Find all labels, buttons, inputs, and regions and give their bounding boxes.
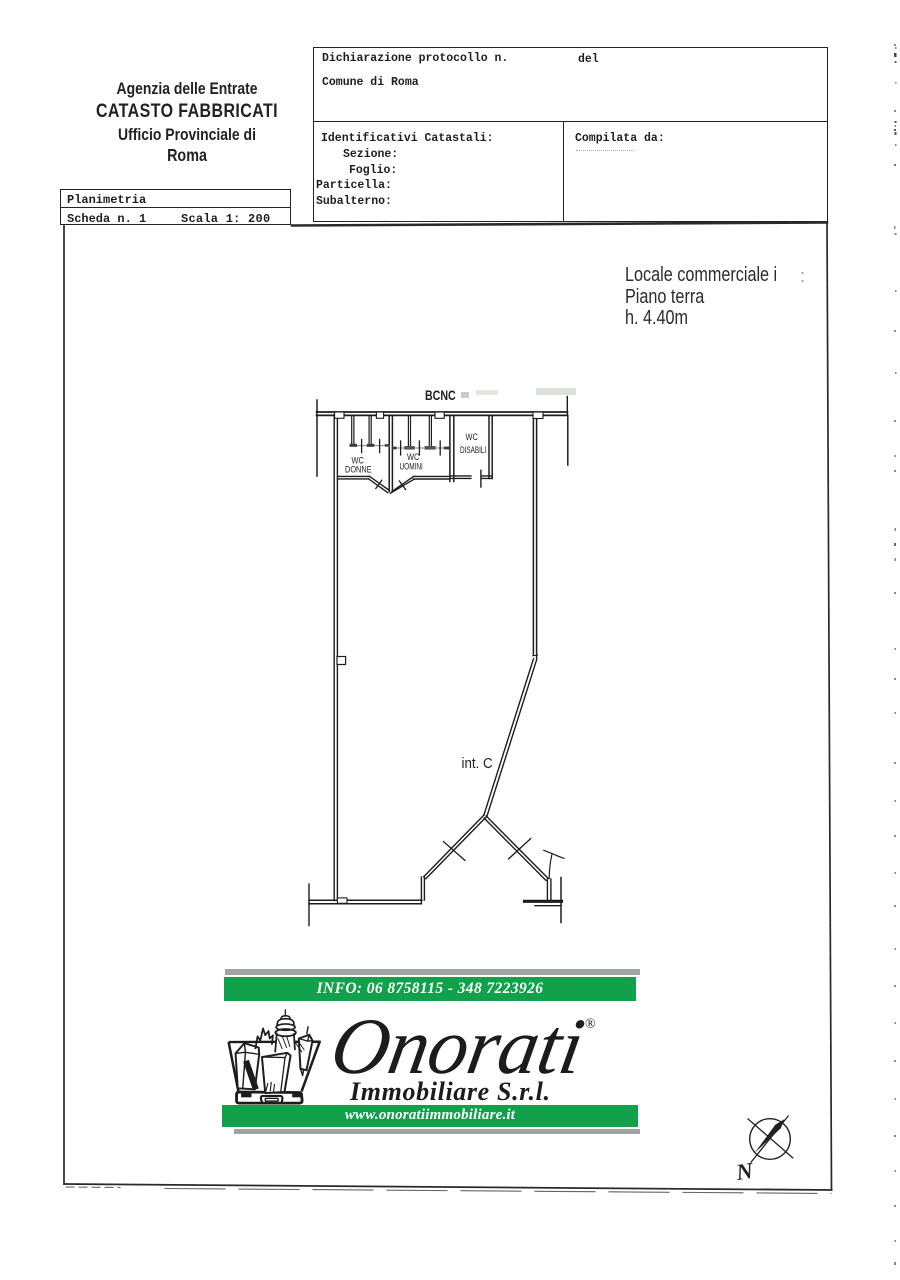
svg-text:®: ® [585,1017,596,1032]
svg-text:Immobiliare S.r.l.: Immobiliare S.r.l. [349,1077,550,1106]
